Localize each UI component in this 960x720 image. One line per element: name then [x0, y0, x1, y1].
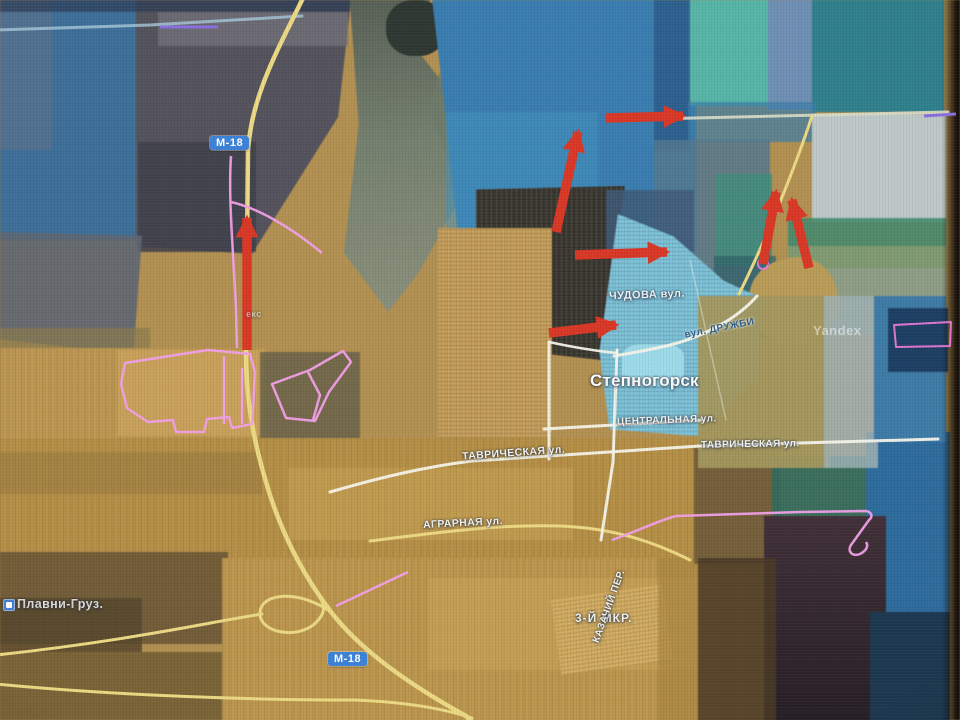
street-label-tsentralnaya: ЦЕНТРАЛЬНАЯ ул.: [617, 413, 717, 427]
cargo-station-icon: [3, 599, 15, 611]
place-label-plavni-gruz: Плавни-Груз.: [17, 597, 103, 611]
m18-highway-badge-south: М-18: [328, 652, 367, 666]
street-label-kazachiy: КАЗАЧИЙ ПЕР.: [591, 568, 628, 644]
m18-highway-badge-north: М-18: [210, 136, 249, 150]
street-label-tavricheskaya-west: ТАВРИЧЕСКАЯ ул.: [462, 443, 566, 462]
street-label-druzhby: вул. ДРУЖБИ: [684, 316, 756, 340]
street-label-agrarnaya: АГРАРНАЯ ул.: [423, 515, 503, 531]
city-label-stepnogorsk: Степногорск: [590, 371, 699, 391]
partial-label: екс: [246, 309, 262, 319]
map-labels-layer: Степногорск ЧУДОВА вул. вул. ДРУЖБИ ЦЕНТ…: [0, 0, 960, 720]
yandex-watermark: Yandex: [813, 323, 862, 338]
street-label-chudova: ЧУДОВА вул.: [609, 288, 685, 303]
satellite-map-viewport[interactable]: Степногорск ЧУДОВА вул. вул. ДРУЖБИ ЦЕНТ…: [0, 0, 960, 720]
street-label-tavricheskaya-east: ТАВРИЧЕСКАЯ ул.: [701, 438, 800, 451]
